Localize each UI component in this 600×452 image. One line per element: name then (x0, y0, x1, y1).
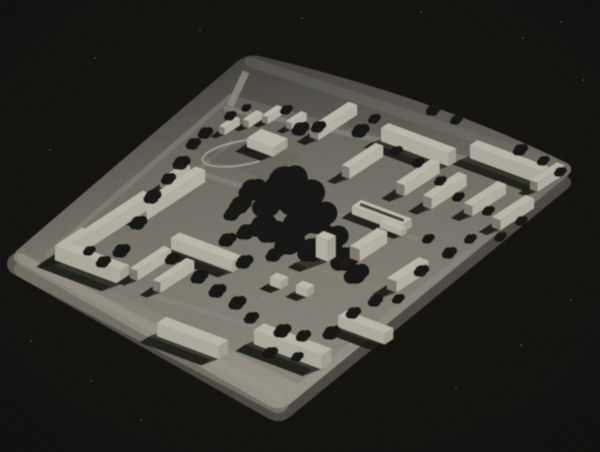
film-grain-light (0, 0, 600, 452)
model-photo (0, 0, 600, 452)
architectural-model-photograph (0, 0, 600, 452)
